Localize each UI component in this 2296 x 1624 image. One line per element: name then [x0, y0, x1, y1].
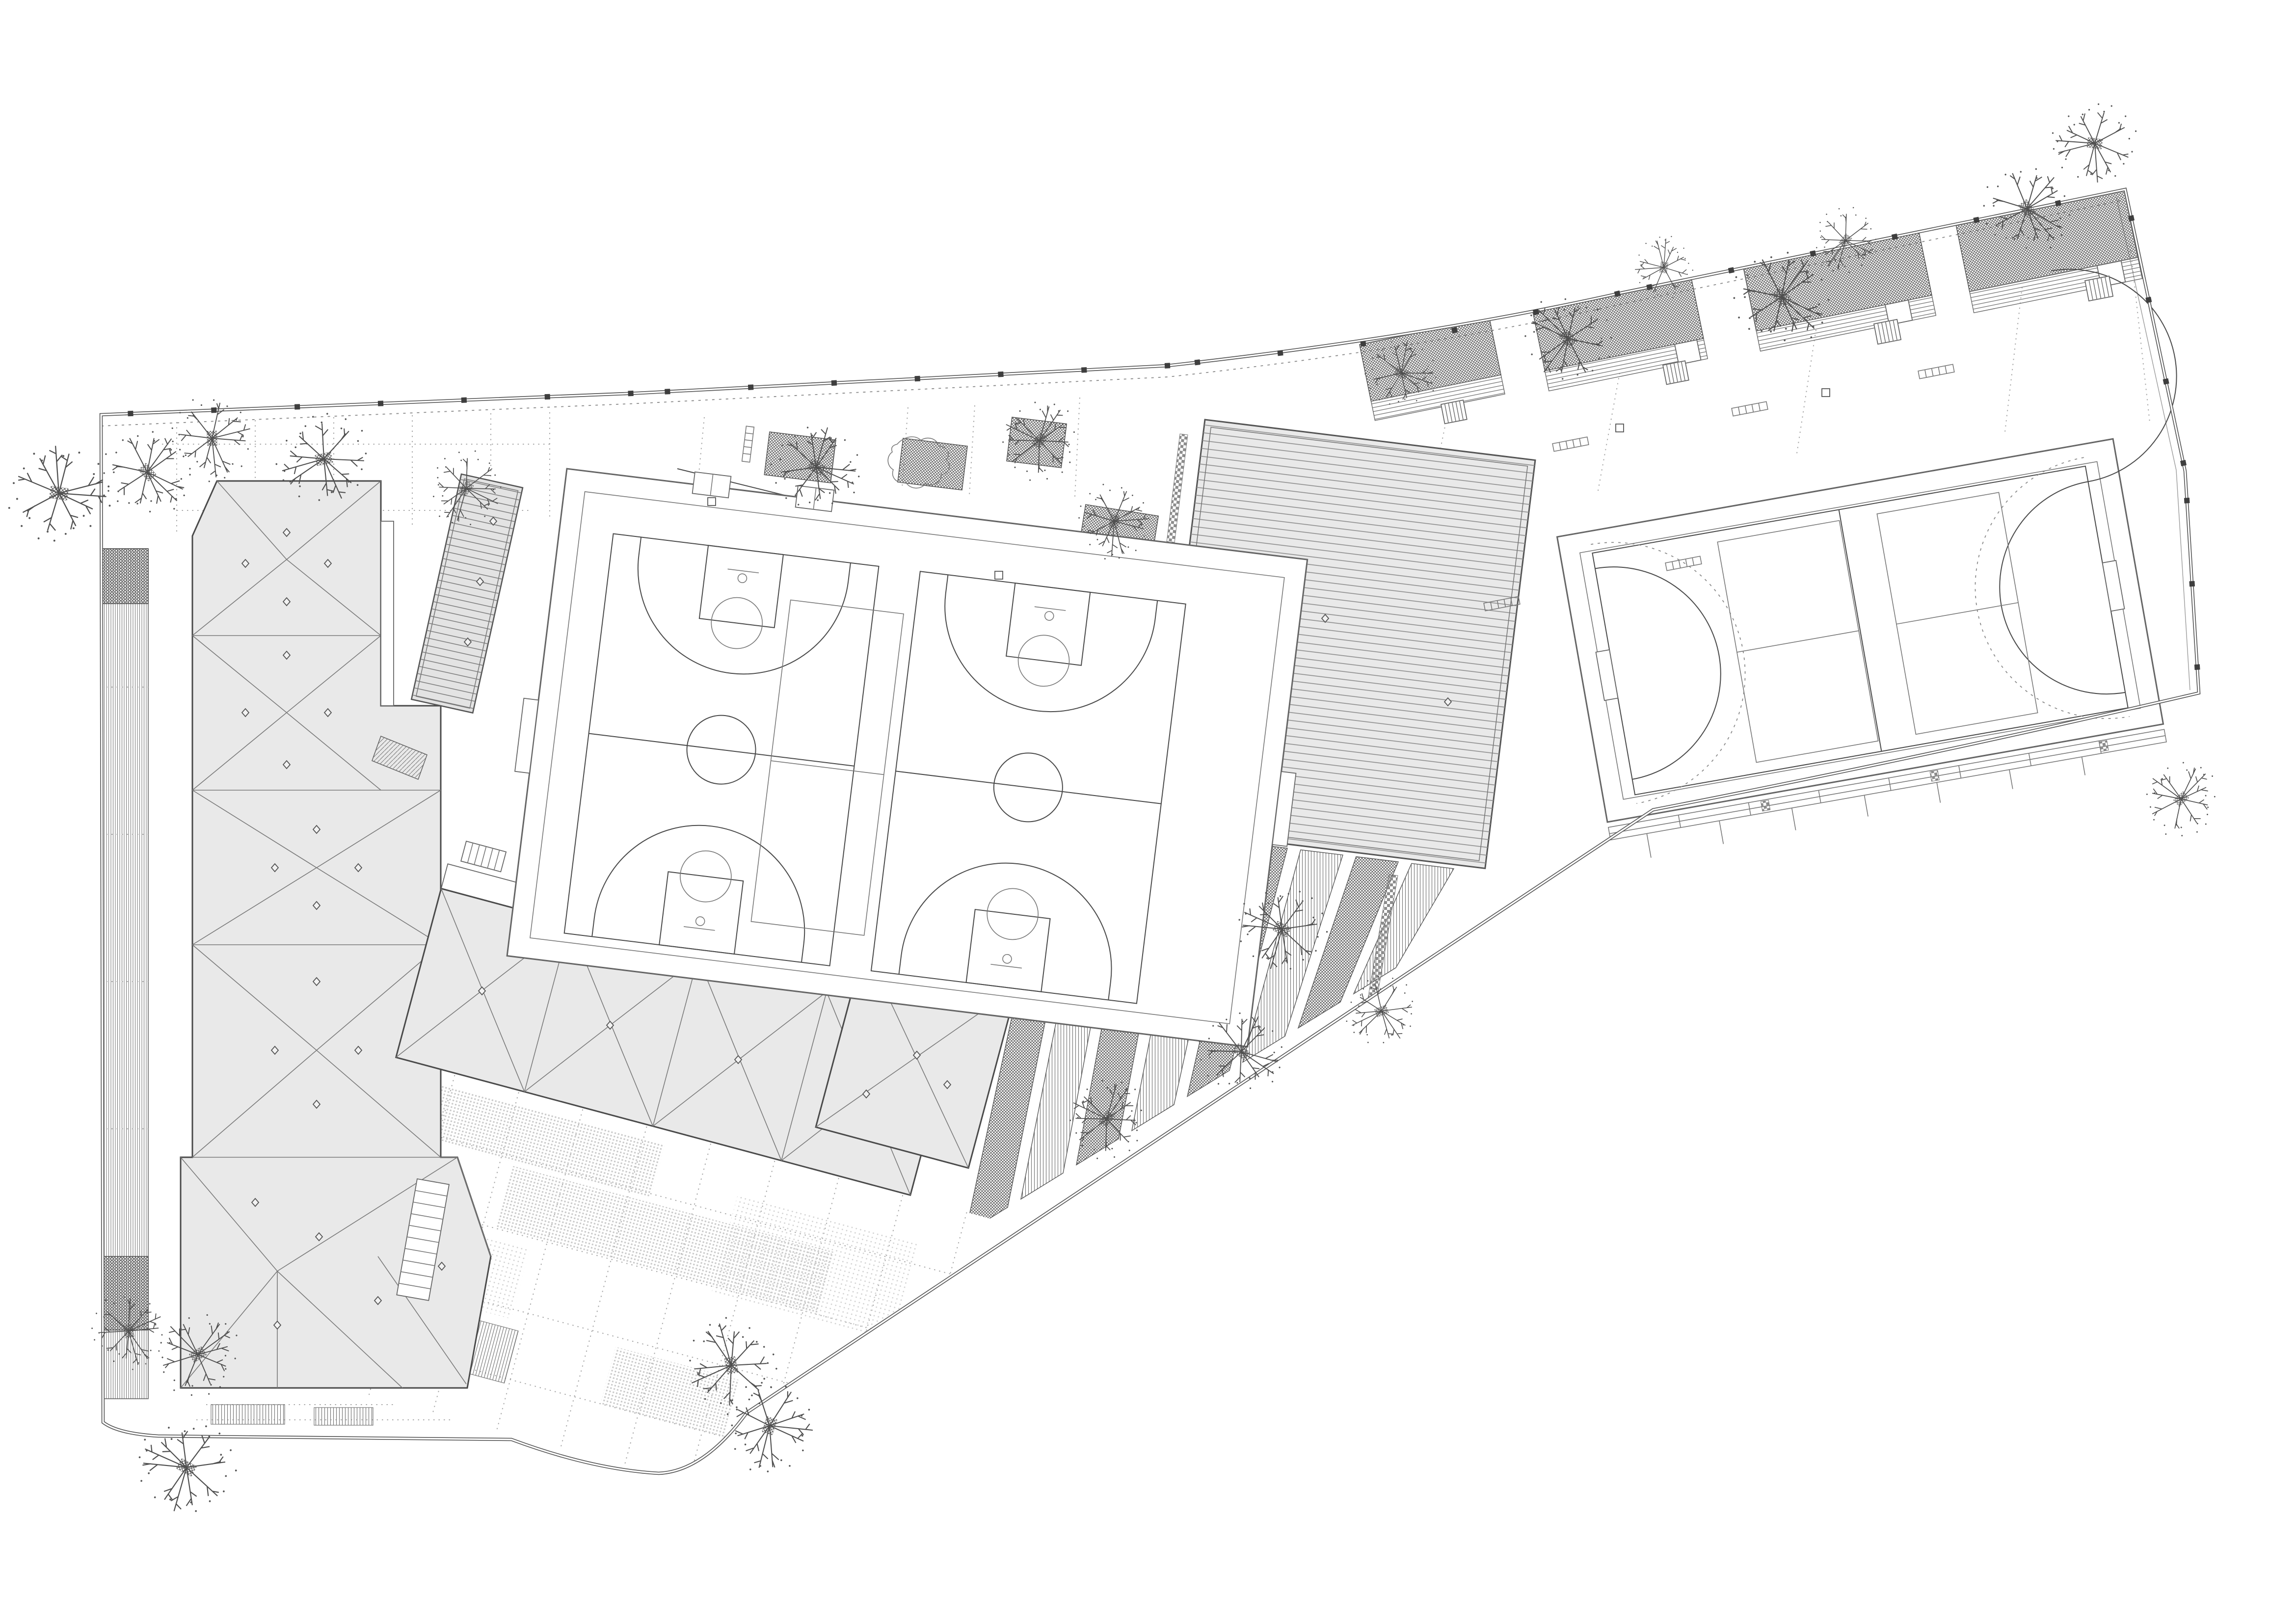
fence-post-icon [2180, 460, 2187, 466]
fence-post-icon [1277, 350, 1283, 356]
fence-post-icon [628, 391, 633, 396]
tree-icon [2130, 747, 2233, 851]
fence-post-icon [1973, 217, 1979, 223]
fence-post-icon [378, 400, 383, 406]
fence-post-icon [2189, 581, 2195, 587]
fence-post-icon [914, 376, 920, 382]
tree-icon [2052, 104, 2136, 183]
fence-post-icon [2055, 200, 2061, 207]
fence-post-icon [545, 394, 550, 399]
tree-icon [8, 446, 111, 541]
fence-post-icon [211, 407, 216, 413]
fence-post-icon [748, 384, 754, 390]
table-tennis-icon [796, 486, 834, 512]
fence-post-icon [2128, 215, 2135, 221]
fence-post-icon [1165, 363, 1171, 369]
fence-post-icon [1892, 234, 1898, 240]
fence-post-icon [1195, 359, 1201, 365]
fence-post-icon [1810, 250, 1816, 257]
stair-icon [1441, 400, 1467, 424]
fence-post-icon [1081, 367, 1087, 373]
embankment-strip [101, 549, 148, 1399]
stair-icon [1663, 361, 1689, 384]
paving-strip [314, 1408, 373, 1425]
playground-courts [492, 467, 1322, 1048]
paving-strip [211, 1405, 285, 1424]
fence-post-icon [128, 411, 133, 416]
fence-post-icon [1360, 341, 1366, 346]
fence-post-icon [2184, 498, 2190, 504]
walkway-strip [381, 521, 394, 706]
stair-icon [1874, 319, 1901, 344]
fence-post-icon [1614, 291, 1621, 297]
drawing-sheet [0, 0, 2296, 1624]
table-tennis-icon [693, 472, 731, 498]
fence-post-icon [294, 404, 300, 409]
fence-post-icon [665, 389, 670, 395]
fence-post-icon [1728, 267, 1735, 273]
fence-post-icon [831, 380, 837, 386]
fence-post-icon [998, 372, 1004, 377]
fence-post-icon [1646, 284, 1653, 290]
site-plan-canvas [0, 0, 2296, 1624]
stair-icon [2085, 276, 2113, 301]
fence-post-icon [1533, 309, 1539, 315]
fence-post-icon [461, 398, 467, 403]
fence-post-icon [2163, 378, 2169, 385]
fence-post-icon [2145, 296, 2152, 303]
fence-post-icon [2194, 664, 2200, 670]
fence-post-icon [1451, 327, 1458, 333]
